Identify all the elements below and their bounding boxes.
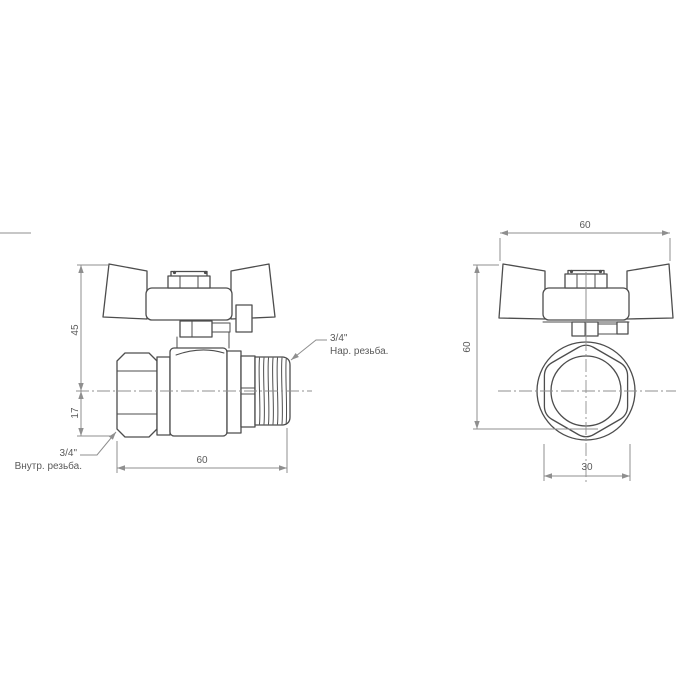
dim-text-60: 60 <box>196 455 208 466</box>
stem-nut <box>168 276 210 288</box>
arrowhead <box>78 428 83 436</box>
union-band <box>241 356 255 427</box>
female-hex-end <box>117 353 157 437</box>
handle-left-wing <box>103 264 147 319</box>
stem-nut-mark <box>173 271 176 274</box>
dimension-17: 17 <box>70 391 114 436</box>
male-thread-size: 3/4" <box>330 333 348 344</box>
female-thread-callout: 3/4" Внутр. резьба. <box>15 432 116 472</box>
arrowhead <box>500 230 508 235</box>
handle-left-wing <box>499 264 545 319</box>
dim-text-60-width: 60 <box>579 220 591 231</box>
arrowhead <box>474 265 479 273</box>
male-thread-callout: 3/4" Нар. резьба. <box>291 333 388 360</box>
front-view: 60 60 30 <box>462 220 676 482</box>
handle-hub <box>146 288 232 320</box>
arrowhead <box>78 391 83 399</box>
arrowhead <box>474 421 479 429</box>
stem-nut-mark <box>599 270 602 273</box>
dim-text-17: 17 <box>70 407 81 419</box>
dimension-30: 30 <box>544 444 630 481</box>
handle-stop-tab <box>617 322 628 334</box>
stem-nut-mark <box>570 270 573 273</box>
dim-text-60-height: 60 <box>462 341 473 353</box>
arrowhead <box>544 473 552 478</box>
packing-nut <box>180 321 212 337</box>
arrowhead <box>117 465 125 470</box>
male-thread-label: Нар. резьба. <box>330 345 388 357</box>
dimension-60-width: 60 <box>500 220 670 261</box>
body-ring <box>157 357 170 435</box>
female-thread-size: 3/4" <box>60 448 78 459</box>
arrowhead <box>78 265 83 273</box>
ball-valve-drawing: 45 17 60 3/4" Нар. резьба. 3 <box>0 0 700 700</box>
handle-right-wing <box>627 264 673 319</box>
body-band <box>227 351 241 433</box>
arrowhead <box>622 473 630 478</box>
arrowhead <box>662 230 670 235</box>
side-view: 45 17 60 3/4" Нар. резьба. 3 <box>15 264 389 473</box>
female-thread-label: Внутр. резьба. <box>15 460 82 472</box>
arrowhead <box>78 383 83 391</box>
valve-body <box>170 348 227 436</box>
arrowhead <box>279 465 287 470</box>
technical-drawing-page: 45 17 60 3/4" Нар. резьба. 3 <box>0 0 700 700</box>
dim-text-30: 30 <box>581 462 593 473</box>
stem-nut-mark <box>204 271 207 274</box>
handle-stop-tab <box>236 305 252 332</box>
dim-text-45: 45 <box>70 324 81 336</box>
